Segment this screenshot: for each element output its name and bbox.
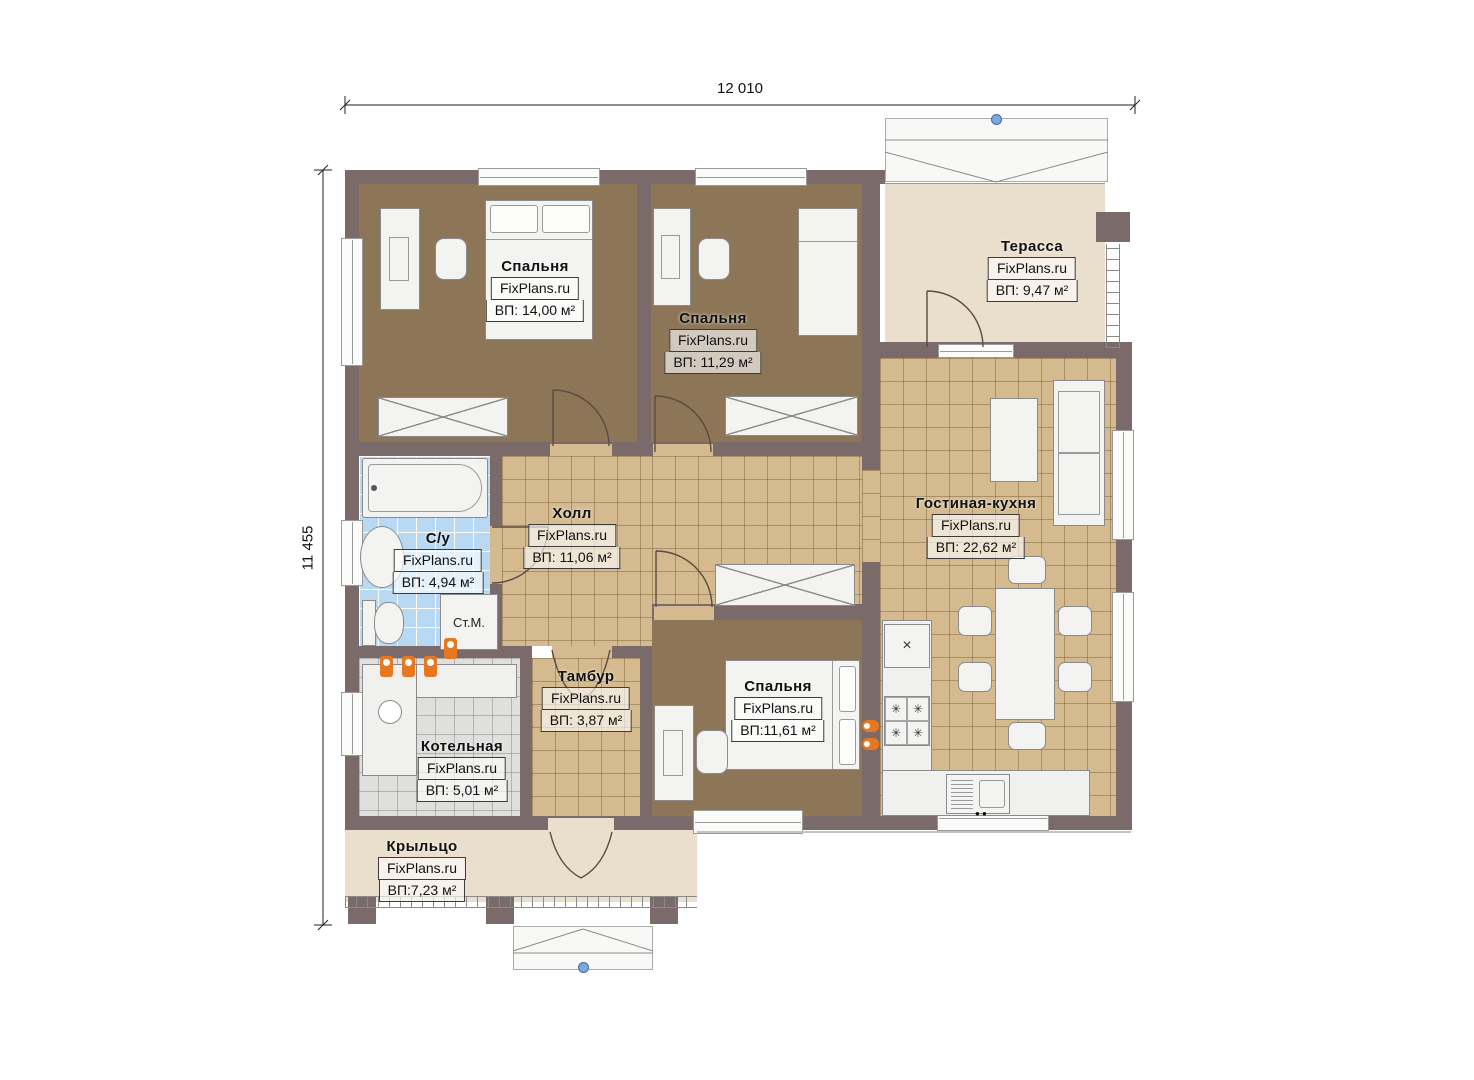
window bbox=[1112, 592, 1134, 702]
room-label-tambour: Тамбур FixPlans.ru ВП: 3,87 м² bbox=[541, 668, 632, 732]
wall-segment bbox=[862, 562, 880, 816]
window bbox=[341, 238, 363, 366]
desk-monitor bbox=[389, 237, 409, 281]
bathtub-faucet bbox=[371, 485, 377, 491]
brand-watermark: FixPlans.ru bbox=[418, 757, 506, 780]
room-label-bedroom-1: Спальня FixPlans.ru ВП: 14,00 м² bbox=[486, 258, 584, 322]
window bbox=[478, 168, 600, 186]
room-label-bathroom: С/у FixPlans.ru ВП: 4,94 м² bbox=[393, 530, 484, 594]
brand-watermark: FixPlans.ru bbox=[394, 549, 482, 572]
kitchen-sink: ● ● bbox=[946, 774, 1010, 814]
door-opening bbox=[490, 526, 502, 584]
room-name: Гостиная-кухня bbox=[916, 495, 1037, 512]
dining-chair bbox=[1058, 662, 1092, 692]
section-marker-icon bbox=[578, 962, 589, 973]
pillow bbox=[490, 205, 538, 233]
room-area: ВП:11,61 м² bbox=[731, 720, 824, 742]
blanket-line bbox=[799, 241, 857, 242]
dining-chair bbox=[958, 662, 992, 692]
floor-plan: Ст.М. × ✳ ✳ ✳ ✳ ● ● bbox=[0, 0, 1474, 1080]
hall-living-opening bbox=[862, 470, 880, 562]
dining-table bbox=[995, 588, 1055, 720]
terrace-railing bbox=[1106, 244, 1120, 348]
radiator-icon bbox=[862, 720, 879, 732]
brand-watermark: FixPlans.ru bbox=[669, 329, 757, 352]
room-label-boiler-room: Котельная FixPlans.ru ВП: 5,01 м² bbox=[417, 738, 508, 802]
room-label-bedroom-2: Спальня FixPlans.ru ВП: 11,29 м² bbox=[664, 310, 761, 374]
window bbox=[341, 692, 363, 756]
unit-cross-glyph: × bbox=[902, 637, 911, 655]
room-name: Крыльцо bbox=[386, 838, 457, 855]
sink-faucet: ● ● bbox=[975, 811, 1005, 817]
sofa-cushion bbox=[1058, 391, 1100, 453]
room-name: Холл bbox=[552, 505, 591, 522]
room-name: Тамбур bbox=[558, 668, 615, 685]
dining-chair bbox=[1008, 556, 1046, 584]
room-area: ВП: 11,06 м² bbox=[523, 547, 620, 569]
gas-equipment-icon bbox=[424, 656, 437, 677]
room-label-terrace: Терасса FixPlans.ru ВП: 9,47 м² bbox=[987, 238, 1078, 302]
desk-monitor bbox=[663, 730, 683, 776]
room-label-porch: Крыльцо FixPlans.ru ВП:7,23 м² bbox=[378, 838, 466, 902]
washing-machine-label: Ст.М. bbox=[453, 615, 485, 630]
terrace-door-opening bbox=[938, 344, 1014, 358]
terrace-post bbox=[1096, 212, 1130, 242]
wall-segment bbox=[637, 184, 651, 442]
room-name: Спальня bbox=[744, 678, 812, 695]
front-door-opening bbox=[548, 818, 614, 830]
brand-watermark: FixPlans.ru bbox=[932, 514, 1020, 537]
blanket-line bbox=[832, 661, 833, 769]
sink-basin bbox=[979, 780, 1005, 808]
sofa bbox=[1053, 380, 1105, 526]
room-area: ВП: 4,94 м² bbox=[393, 572, 484, 594]
section-marker-icon bbox=[991, 114, 1002, 125]
wardrobe bbox=[725, 396, 858, 436]
terrace-awning bbox=[885, 118, 1108, 182]
wall-segment bbox=[612, 646, 652, 658]
burner-icon: ✳ bbox=[907, 721, 929, 745]
chair bbox=[698, 238, 730, 280]
bathtub bbox=[362, 458, 488, 518]
chair bbox=[696, 730, 728, 774]
chair bbox=[435, 238, 467, 280]
brand-watermark: FixPlans.ru bbox=[528, 524, 616, 547]
room-area: ВП:7,23 м² bbox=[379, 880, 466, 902]
gas-equipment-icon bbox=[380, 656, 393, 677]
room-area: ВП: 3,87 м² bbox=[541, 710, 632, 732]
wall-segment bbox=[862, 170, 880, 470]
pillow bbox=[839, 719, 856, 765]
brand-watermark: FixPlans.ru bbox=[378, 857, 466, 880]
sofa-cushion bbox=[1058, 453, 1100, 515]
wardrobe bbox=[378, 397, 508, 437]
window bbox=[1112, 430, 1134, 540]
gas-equipment-icon bbox=[444, 638, 457, 659]
pillow bbox=[839, 666, 856, 712]
brand-watermark: FixPlans.ru bbox=[988, 257, 1076, 280]
kitchen-unit-icon: × bbox=[884, 624, 930, 668]
burner-icon: ✳ bbox=[885, 721, 907, 745]
brand-watermark: FixPlans.ru bbox=[542, 687, 630, 710]
dining-chair bbox=[958, 606, 992, 636]
door-opening bbox=[654, 606, 714, 620]
wardrobe bbox=[715, 564, 855, 606]
room-label-living-kitchen: Гостиная-кухня FixPlans.ru ВП: 22,62 м² bbox=[916, 495, 1037, 559]
desk bbox=[653, 208, 691, 306]
room-name: Спальня bbox=[501, 258, 569, 275]
wall-segment bbox=[1116, 342, 1132, 830]
desk bbox=[654, 705, 694, 801]
room-name: Котельная bbox=[421, 738, 503, 755]
dining-chair bbox=[1008, 722, 1046, 750]
room-name: Терасса bbox=[1001, 238, 1063, 255]
blanket-line bbox=[486, 239, 592, 240]
room-area: ВП: 11,29 м² bbox=[664, 352, 761, 374]
bed-single bbox=[798, 208, 858, 336]
room-area: ВП: 14,00 м² bbox=[486, 300, 584, 322]
window bbox=[695, 168, 807, 186]
desk bbox=[380, 208, 420, 310]
dining-chair bbox=[1058, 606, 1092, 636]
room-area: ВП: 22,62 м² bbox=[927, 537, 1025, 559]
room-area: ВП: 9,47 м² bbox=[987, 280, 1078, 302]
toilet-bowl bbox=[374, 602, 404, 644]
room-label-hall: Холл FixPlans.ru ВП: 11,06 м² bbox=[523, 505, 620, 569]
pillow bbox=[542, 205, 590, 233]
wall-segment bbox=[345, 646, 532, 658]
room-label-bedroom-3: Спальня FixPlans.ru ВП:11,61 м² bbox=[731, 678, 824, 742]
gas-equipment-icon bbox=[402, 656, 415, 677]
dimension-height-label: 11 455 bbox=[300, 526, 317, 571]
sink-drainboard bbox=[951, 779, 973, 809]
door-opening bbox=[550, 444, 612, 456]
dimension-width-label: 12 010 bbox=[717, 80, 763, 97]
bathtub-basin bbox=[368, 464, 482, 512]
room-name: Спальня bbox=[679, 310, 747, 327]
door-opening bbox=[653, 444, 713, 456]
radiator-icon bbox=[862, 738, 879, 750]
room-area: ВП: 5,01 м² bbox=[417, 780, 508, 802]
brand-watermark: FixPlans.ru bbox=[734, 697, 822, 720]
foundation-line bbox=[697, 831, 1131, 833]
burner-icon: ✳ bbox=[885, 697, 907, 721]
coffee-table bbox=[990, 398, 1038, 482]
stove: ✳ ✳ ✳ ✳ bbox=[884, 696, 930, 746]
room-name: С/у bbox=[426, 530, 451, 547]
boiler-sink bbox=[378, 700, 402, 724]
desk-monitor bbox=[661, 235, 680, 279]
door-opening bbox=[552, 646, 612, 658]
wall-segment bbox=[640, 646, 652, 816]
wall-segment bbox=[520, 646, 532, 816]
burner-icon: ✳ bbox=[907, 697, 929, 721]
brand-watermark: FixPlans.ru bbox=[491, 277, 579, 300]
